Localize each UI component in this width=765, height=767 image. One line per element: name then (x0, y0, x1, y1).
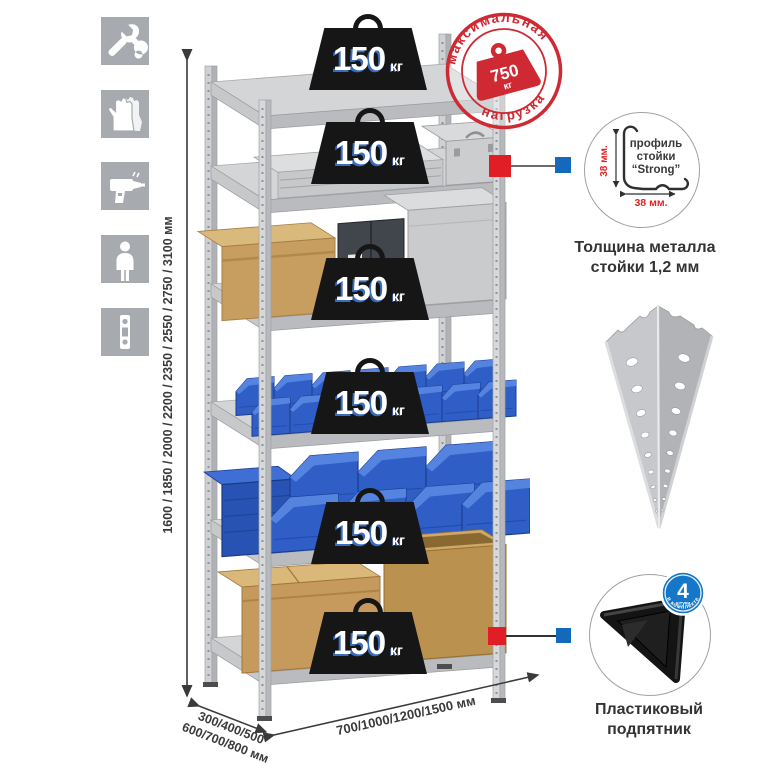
shelf-load-badge: 150кг (311, 108, 429, 184)
profile-label-1: профиль (630, 138, 683, 150)
profile-callout-blue-marker (555, 157, 571, 173)
profile-label-3: “Strong” (632, 164, 681, 176)
profile-detail-circle: 38 мм. 38 мм. профиль стойки “Strong” (584, 112, 700, 228)
foot-callout-blue-marker (556, 628, 571, 643)
profile-label-2: стойки (637, 151, 676, 163)
person-icon (101, 235, 149, 283)
profile-strip-icon (101, 308, 149, 356)
profile-horizontal-dim: 38 мм. (634, 197, 667, 209)
set-count-badge: 4 штуки в комплекте (659, 569, 707, 617)
profile-vertical-dim: 38 мм. (599, 145, 610, 177)
shelf-load-badge: 150кг (309, 14, 427, 90)
angle-post-image (596, 300, 724, 535)
height-dimension-label: 1600 / 1850 / 2000 / 2200 / 2350 / 2550 … (161, 216, 177, 533)
foot-callout-red-marker (488, 627, 506, 645)
shelf-load-badge: 150кг (311, 358, 429, 434)
profile-callout-line (511, 165, 555, 167)
foot-callout-line (506, 635, 556, 637)
foot-caption: Пластиковый подпятник (574, 700, 724, 739)
badge-number: 4 (677, 580, 689, 603)
drill-icon (101, 162, 149, 210)
product-infographic: { "rack": { "shelf_count": 6, "shelf_loa… (0, 0, 765, 765)
shelf-load-badge: 150кг (311, 488, 429, 564)
profile-callout-red-marker (489, 155, 511, 177)
max-load-stamp: максимальная нагрузка 750 кг (442, 9, 566, 133)
profile-caption: Толщина металла стойки 1,2 мм (570, 238, 720, 277)
shelf-load-badge: 150кг (311, 244, 429, 320)
gloves-icon (101, 90, 149, 138)
wrench-icon (101, 17, 149, 65)
